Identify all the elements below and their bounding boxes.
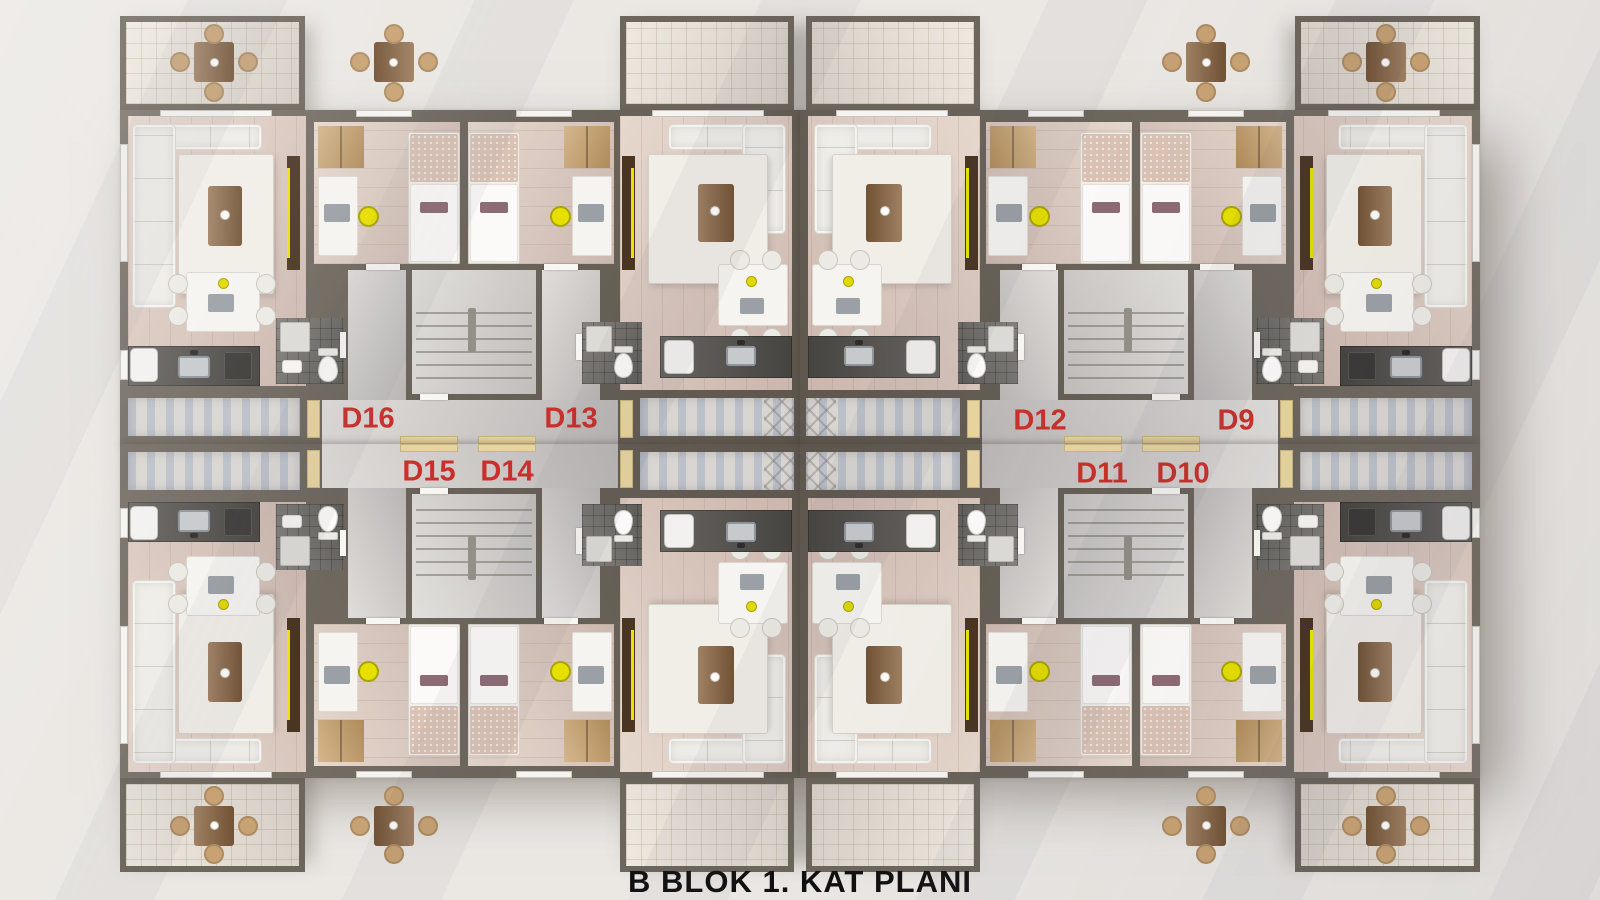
balcony-chair-icon [1410,816,1430,836]
fruit-plate [746,601,757,612]
stair-divider [468,536,476,580]
center-walkway-hatch [764,452,800,490]
fruit-plate [746,276,757,287]
inner-balcony [620,16,794,110]
balcony-chair-icon [170,816,190,836]
laptop-icon [578,666,604,684]
center-walkway-hatch [800,398,836,436]
faucet-icon [1402,533,1410,538]
table-tray [740,574,764,590]
bathroom-door [1254,332,1260,358]
toilet-icon [967,353,986,378]
center-walkway-hatch [764,398,800,436]
unit-label-d13: D13 [544,403,597,436]
entry-door-mat [307,400,320,438]
desk-chair-yellow [550,661,571,682]
floor-quadrant [120,444,800,872]
bed-pillow-decor [1152,675,1180,686]
interior-door [1022,264,1056,270]
stairwell-door [420,394,448,400]
toilet-tank [318,348,338,356]
corner-balcony [1295,16,1480,110]
shower-pan [988,326,1014,352]
dining-chair-icon [168,562,188,582]
balcony-door [160,110,272,117]
entry-door-mat [1142,444,1200,452]
bed-pillow-decor [1152,202,1180,213]
balcony-chair-icon [350,52,370,72]
balcony-door [836,771,948,778]
entry-landing [322,444,618,488]
entry-door-mat [1064,444,1122,452]
dining-chair-icon [762,618,782,638]
bed-blanket [1082,134,1130,182]
unit-label-d16: D16 [341,403,394,436]
desk-chair-yellow [1221,661,1242,682]
dining-chair-icon [1324,306,1344,326]
wardrobe [1236,720,1282,762]
balcony-door [836,110,948,117]
table-tray [836,298,860,314]
balcony-chair-icon [1342,816,1362,836]
interior-door [1200,264,1234,270]
interior-door [366,618,400,624]
window [1188,771,1244,778]
quadrant-top-right [800,16,1480,444]
entry-door-mat [1064,436,1122,444]
quadrant-top-left [120,16,800,444]
bed-blanket [410,134,458,182]
floor-quadrant [120,16,800,444]
balcony-chair-icon [1376,786,1396,806]
tv-screen-icon [1310,168,1313,258]
balcony-door [160,771,272,778]
balcony-table-decor [210,821,219,830]
fruit-plate [1371,278,1382,289]
tv-screen-icon [1310,630,1313,720]
bed-duvet [470,184,518,262]
rear-balcony-strip [128,398,300,436]
bed-duvet [410,184,458,262]
unit-label-d12: D12 [1013,405,1066,438]
stairwell [1064,270,1188,394]
bed-pillow-decor [480,675,508,686]
bed-duvet [410,626,458,704]
balcony-table-decor [389,821,398,830]
window [120,508,128,538]
stove-icon [1348,352,1376,380]
balcony-door [652,771,764,778]
fruit-plate [843,276,854,287]
balcony-chair-icon [384,786,404,806]
dining-chair-icon [730,250,750,270]
table-tray [1366,294,1392,312]
corner-balcony [1295,778,1480,872]
interior-door [544,264,578,270]
floor-quadrant [800,444,1480,872]
desk-chair-yellow [358,206,379,227]
window [120,626,128,744]
tv-screen-icon [631,630,634,720]
bed-duvet [1082,184,1130,262]
balcony-chair-icon [1376,844,1396,864]
desk-chair-yellow [1029,661,1050,682]
bed-pillow-decor [1092,202,1120,213]
balcony-chair-icon [1376,24,1396,44]
desk-chair-yellow [358,661,379,682]
table-tray [208,576,234,594]
corner-balcony [120,16,305,110]
coffee-table-decor [710,672,720,682]
dining-chair-icon [168,306,188,326]
coffee-table-decor [1370,210,1380,220]
dining-chair-icon [818,250,838,270]
wardrobe [564,126,610,168]
interior-door [544,618,578,624]
laptop-icon [996,666,1022,684]
bathroom-door [576,334,582,360]
apartment-hall [348,488,406,618]
desk-chair-yellow [1221,206,1242,227]
dining-chair-icon [762,250,782,270]
entry-door-mat [478,436,536,444]
laptop-icon [1250,204,1276,222]
balcony-door [1328,771,1440,778]
bathroom-door [340,332,346,358]
balcony-chair-icon [1410,52,1430,72]
interior-door [1022,618,1056,624]
dining-chair-icon [168,274,188,294]
unit-label-d9: D9 [1217,405,1254,438]
coffee-table-decor [880,672,890,682]
unit-label-d15: D15 [402,456,455,489]
entry-door-mat [1280,400,1293,438]
stairwell [412,270,536,394]
tv-screen-icon [966,630,969,720]
wardrobe [318,720,364,762]
shower-pan [586,536,612,562]
kitchen-sink-icon [844,346,874,366]
fridge-icon [664,514,694,548]
entry-door-mat [478,444,536,452]
rear-balcony-strip [1300,452,1472,490]
toilet-tank [1262,348,1282,356]
fridge-icon [130,506,158,540]
shower-pan [1290,536,1320,566]
entry-door-mat [620,450,633,488]
tv-screen-icon [631,168,634,258]
balcony-table-decor [1381,58,1390,67]
window [1188,110,1244,117]
balcony-chair-icon [204,844,224,864]
balcony-chair-icon [350,816,370,836]
dining-chair-icon [730,618,750,638]
corner-balcony [120,778,305,872]
balcony-chair-icon [238,52,258,72]
fridge-icon [1442,348,1470,382]
window [1472,144,1480,262]
entry-door-mat [307,450,320,488]
quadrant-bottom-left [120,444,800,872]
desk-chair-yellow [1029,206,1050,227]
coffee-table-decor [710,206,720,216]
window [1028,110,1084,117]
stairwell-door [1152,394,1180,400]
shower-pan [280,536,310,566]
stove-icon [1348,508,1376,536]
toilet-tank [967,346,986,353]
dining-chair-icon [818,618,838,638]
balcony-chair-icon [1376,82,1396,102]
wardrobe [318,126,364,168]
window [120,350,128,380]
balcony-chair-icon [204,24,224,44]
faucet-icon [855,340,863,345]
kitchen-sink-icon [178,356,210,378]
balcony-chair-icon [384,82,404,102]
floor-quadrant [800,16,1480,444]
apartment-hall [1194,488,1252,618]
coffee-table-decor [880,206,890,216]
faucet-icon [190,533,198,538]
quadrant-bottom-right [800,444,1480,872]
kitchen-sink-icon [726,522,756,542]
interior-door [1200,618,1234,624]
fruit-plate [218,599,229,610]
entry-door-mat [1142,436,1200,444]
dining-table [812,562,882,624]
dining-chair-icon [1412,274,1432,294]
stairwell [1064,494,1188,618]
entry-door-mat [620,400,633,438]
dining-chair-icon [168,594,188,614]
fridge-icon [664,340,694,374]
kitchen-sink-icon [844,522,874,542]
kitchen-sink-icon [726,346,756,366]
window [356,110,412,117]
dining-table [718,264,788,326]
toilet-tank [1262,532,1282,540]
laptop-icon [324,204,350,222]
bath-sink-icon [1298,515,1318,528]
faucet-icon [737,543,745,548]
dining-chair-icon [256,274,276,294]
dining-chair-icon [850,250,870,270]
fruit-plate [218,278,229,289]
inner-balcony [620,778,794,872]
balcony-chair-icon [418,52,438,72]
bed-pillow-decor [480,202,508,213]
entry-door-mat [400,436,458,444]
apartment-hall [348,270,406,400]
bath-sink-icon [282,515,302,528]
bath-sink-icon [1298,360,1318,373]
dining-chair-icon [1324,594,1344,614]
bathroom-door [340,530,346,556]
inner-balcony [806,16,980,110]
rear-balcony-strip [128,452,300,490]
stove-icon [224,352,252,380]
table-tray [836,574,860,590]
window [1472,508,1480,538]
plan-title: B BLOK 1. KAT PLANI [628,864,972,900]
rear-balcony-strip [1300,398,1472,436]
entry-door-mat [400,444,458,452]
window [356,771,412,778]
window [516,110,572,117]
balcony-chair-icon [238,816,258,836]
balcony-door [1328,110,1440,117]
faucet-icon [1402,350,1410,355]
stairwell-door [420,488,448,494]
center-walkway-hatch [800,452,836,490]
toilet-tank [967,535,986,542]
bathroom-door [1018,528,1024,554]
shower-pan [280,322,310,352]
floor-plan-scene: D16 D13 D12 D9 D15 D14 D11 D10 B BLOK 1.… [0,0,1600,900]
fridge-icon [906,340,936,374]
bed-blanket [410,706,458,754]
bathroom-door [1018,334,1024,360]
laptop-icon [578,204,604,222]
bed-blanket [470,134,518,182]
dining-chair-icon [1324,562,1344,582]
balcony-table-decor [210,58,219,67]
fruit-plate [1371,599,1382,610]
interior-door [366,264,400,270]
coffee-table-decor [220,668,230,678]
window [1028,771,1084,778]
toilet-tank [614,535,633,542]
wardrobe [990,720,1036,762]
dining-chair-icon [1324,274,1344,294]
fridge-icon [1442,506,1470,540]
stair-divider [1124,536,1132,580]
balcony-table-decor [1381,821,1390,830]
toilet-icon [318,356,338,382]
balcony-chair-icon [384,844,404,864]
balcony-chair-icon [418,816,438,836]
balcony-chair-icon [204,786,224,806]
balcony-chair-icon [204,82,224,102]
toilet-tank [318,532,338,540]
coffee-table-decor [1370,668,1380,678]
kitchen-sink-icon [1390,356,1422,378]
laptop-icon [996,204,1022,222]
fridge-icon [130,348,158,382]
unit-label-d10: D10 [1156,458,1209,491]
window [516,771,572,778]
desk-chair-yellow [550,206,571,227]
toilet-icon [1262,356,1282,382]
tv-screen-icon [287,630,290,720]
bed-duvet [1082,626,1130,704]
stair-divider [1124,308,1132,352]
stairwell [412,494,536,618]
wardrobe [990,126,1036,168]
bathroom-door [1254,530,1260,556]
dining-chair-icon [1412,306,1432,326]
unit-label-d11: D11 [1076,458,1128,491]
window [1472,626,1480,744]
dining-chair-icon [256,306,276,326]
balcony-chair-icon [384,24,404,44]
fruit-plate [843,601,854,612]
bed-blanket [1082,706,1130,754]
entry-door-mat [967,400,980,438]
dining-table [718,562,788,624]
apartment-hall [1194,270,1252,400]
wardrobe [1236,126,1282,168]
toilet-tank [614,346,633,353]
shower-pan [1290,322,1320,352]
balcony-chair-icon [170,52,190,72]
bath-sink-icon [282,360,302,373]
kitchen-sink-icon [1390,510,1422,532]
dining-chair-icon [256,594,276,614]
bed-blanket [1142,706,1190,754]
balcony-door [652,110,764,117]
window [1472,350,1480,380]
tv-screen-icon [966,168,969,258]
dining-chair-icon [1412,594,1432,614]
stove-icon [224,508,252,536]
bed-duvet [470,626,518,704]
wardrobe [564,720,610,762]
kitchen-sink-icon [178,510,210,532]
entry-landing [982,444,1278,488]
bed-duvet [1142,184,1190,262]
table-tray [208,294,234,312]
tv-screen-icon [287,168,290,258]
laptop-icon [1250,666,1276,684]
unit-label-d14: D14 [480,456,533,489]
coffee-table-decor [220,210,230,220]
dining-chair-icon [1412,562,1432,582]
bathroom-door [576,528,582,554]
faucet-icon [190,350,198,355]
faucet-icon [855,543,863,548]
table-tray [1366,576,1392,594]
dining-chair-icon [850,618,870,638]
bed-blanket [470,706,518,754]
shower-pan [988,536,1014,562]
bed-pillow-decor [420,202,448,213]
toilet-icon [614,353,633,378]
window [120,144,128,262]
entry-door-mat [967,450,980,488]
bed-pillow-decor [1092,675,1120,686]
dining-chair-icon [256,562,276,582]
balcony-table-decor [389,58,398,67]
laptop-icon [324,666,350,684]
faucet-icon [737,340,745,345]
entry-door-mat [1280,450,1293,488]
stair-divider [468,308,476,352]
dining-table [812,264,882,326]
bed-duvet [1142,626,1190,704]
balcony-chair-icon [1342,52,1362,72]
inner-balcony [806,778,980,872]
bed-pillow-decor [420,675,448,686]
fridge-icon [906,514,936,548]
bed-blanket [1142,134,1190,182]
table-tray [740,298,764,314]
shower-pan [586,326,612,352]
